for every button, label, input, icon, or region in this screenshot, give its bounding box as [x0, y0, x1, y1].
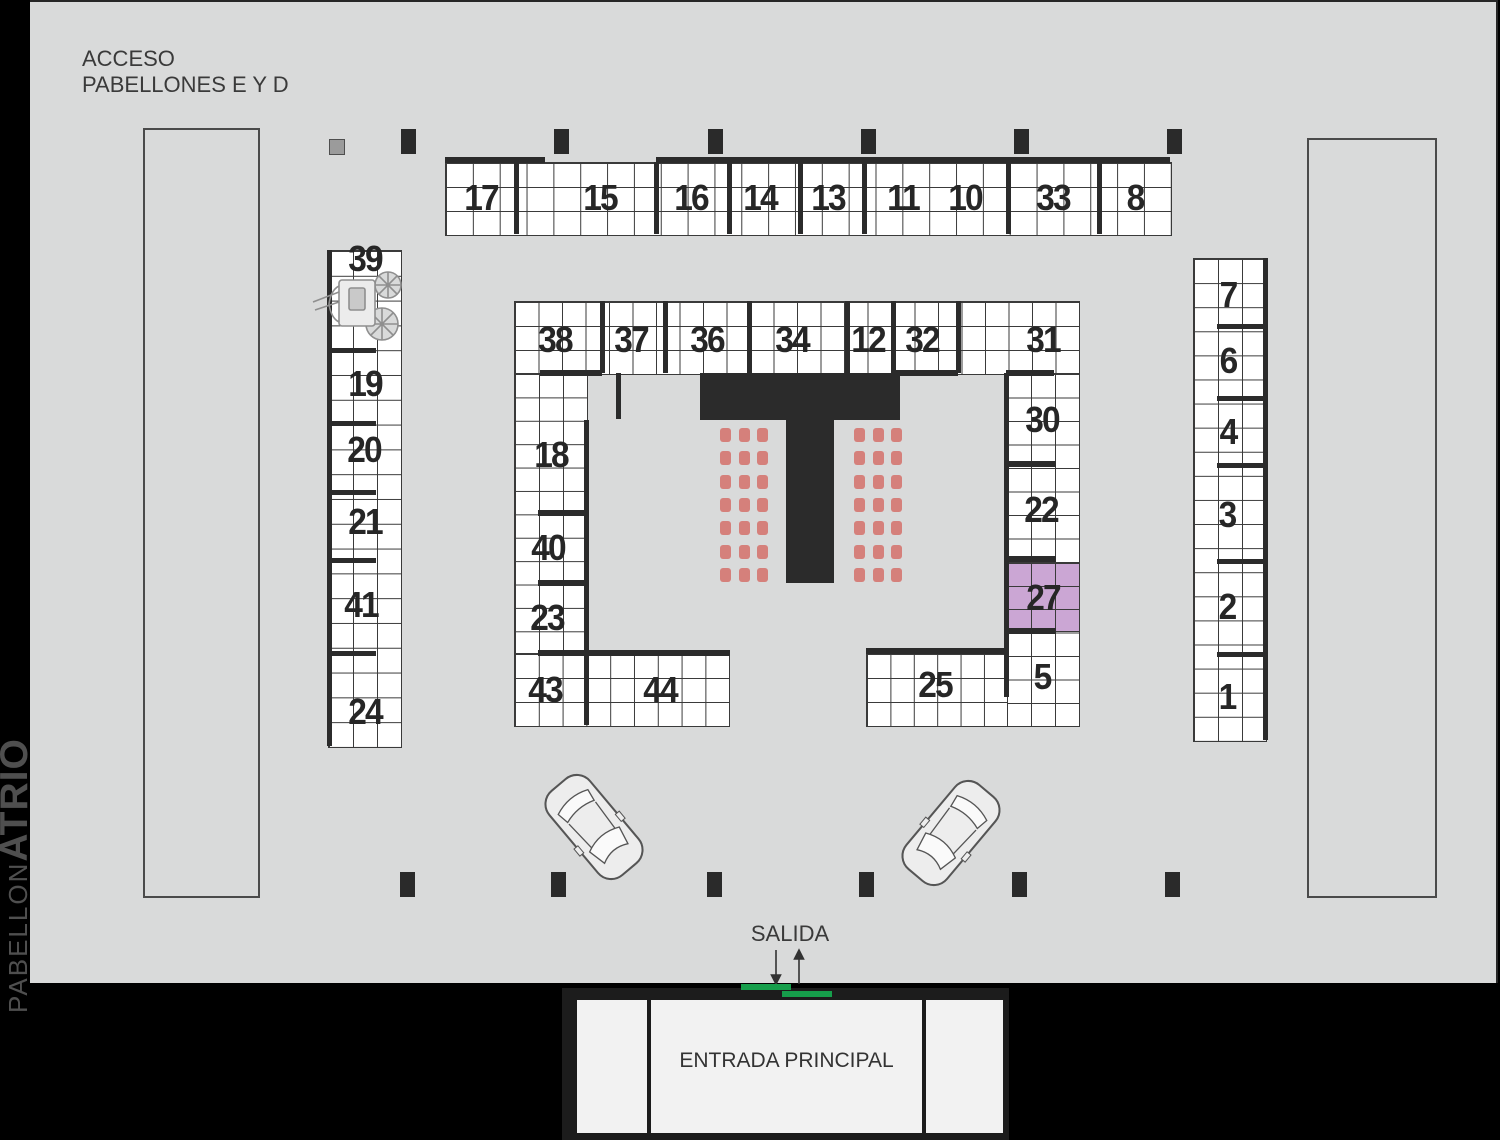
entrance-side-room: [926, 1000, 1003, 1133]
atrium-word: ATRIO: [0, 738, 36, 861]
pillar: [707, 872, 722, 897]
chair-icon: [720, 451, 731, 465]
wall-segment: [584, 420, 589, 653]
booth-label-18: 18: [534, 434, 568, 476]
wall-segment: [798, 162, 803, 234]
access-line1: ACCESO: [82, 46, 289, 72]
booth-label-24: 24: [348, 691, 382, 733]
exit-arrows-icon: [758, 948, 818, 986]
booth-label-34: 34: [775, 319, 809, 361]
chair-icon: [854, 428, 865, 442]
booth-label-7: 7: [1220, 274, 1237, 316]
booth-label-6: 6: [1220, 340, 1237, 382]
chair-icon: [873, 451, 884, 465]
wall-segment: [1006, 628, 1056, 634]
pillar: [554, 129, 569, 154]
chair-icon: [891, 568, 902, 582]
wall-segment: [663, 301, 668, 373]
entrance-label: ENTRADA PRINCIPAL: [651, 988, 922, 1133]
wall-segment: [328, 490, 376, 495]
wall-segment: [1217, 463, 1265, 468]
chair-icon: [757, 428, 768, 442]
chair-icon: [720, 545, 731, 559]
booth-label-13: 13: [811, 177, 845, 219]
chair-icon: [891, 498, 902, 512]
booth-label-43: 43: [528, 669, 562, 711]
chair-icon: [891, 428, 902, 442]
chair-icon: [873, 521, 884, 535]
chair-icon: [757, 475, 768, 489]
wall-segment: [328, 421, 376, 426]
booth-label-30: 30: [1025, 399, 1059, 441]
booth-label-19: 19: [348, 363, 382, 405]
pillar: [401, 129, 416, 154]
booth-label-44: 44: [643, 669, 677, 711]
wall-segment: [328, 651, 376, 656]
entrance-side-room: [577, 1000, 647, 1133]
wall-segment: [328, 558, 376, 563]
chair-icon: [854, 568, 865, 582]
booth-label-8: 8: [1127, 177, 1144, 219]
chair-icon: [891, 545, 902, 559]
chair-icon: [757, 498, 768, 512]
wall-segment: [747, 301, 752, 373]
chair-icon: [891, 475, 902, 489]
booth-label-20: 20: [347, 429, 381, 471]
chair-icon: [854, 521, 865, 535]
wall-segment: [584, 653, 589, 725]
pavilion-word: PABELLON: [3, 862, 33, 1013]
pillar: [1014, 129, 1029, 154]
chair-icon: [720, 428, 731, 442]
wall-segment: [1006, 370, 1054, 376]
wall-segment: [616, 373, 621, 419]
wall-segment: [1263, 258, 1268, 740]
wall-segment: [538, 510, 586, 516]
booth-label-39: 39: [348, 238, 382, 280]
wall-segment: [1006, 162, 1011, 234]
chair-icon: [854, 475, 865, 489]
chair-icon: [739, 521, 750, 535]
wall-segment: [866, 648, 1008, 654]
booth-label-11: 11: [887, 177, 919, 219]
chair-icon: [720, 521, 731, 535]
chair-icon: [873, 568, 884, 582]
utility-box: [329, 139, 345, 155]
booth-label-4: 4: [1220, 411, 1237, 453]
chair-icon: [891, 451, 902, 465]
pillar: [1167, 129, 1182, 154]
chair-icon: [873, 498, 884, 512]
wall-segment: [891, 301, 896, 373]
wall-segment: [700, 373, 900, 420]
right-empty-zone: [1307, 138, 1437, 898]
chair-icon: [739, 568, 750, 582]
wall-segment: [956, 301, 961, 373]
wall-segment: [328, 348, 376, 353]
booth-label-25: 25: [918, 664, 952, 706]
booth-label-16: 16: [674, 177, 708, 219]
wall-segment: [1217, 396, 1265, 401]
booth-label-36: 36: [690, 319, 724, 361]
booth-label-10: 10: [948, 177, 982, 219]
chair-icon: [757, 568, 768, 582]
pillar: [859, 872, 874, 897]
chair-icon: [891, 521, 902, 535]
booth-label-40: 40: [531, 527, 565, 569]
pavilion-name: PABELLONATRIO: [0, 738, 44, 1013]
pillar: [1165, 872, 1180, 897]
wall-segment: [786, 420, 834, 583]
chair-icon: [873, 428, 884, 442]
access-line2: PABELLONES E Y D: [82, 72, 289, 98]
access-label: ACCESO PABELLONES E Y D: [82, 46, 289, 99]
booth-label-3: 3: [1219, 494, 1236, 536]
pillar: [861, 129, 876, 154]
booth-label-32: 32: [905, 319, 939, 361]
wall-segment: [600, 301, 605, 373]
booth-label-1: 1: [1219, 676, 1236, 718]
chair-icon: [739, 498, 750, 512]
left-empty-zone: [143, 128, 260, 898]
wall-segment: [540, 370, 602, 376]
booth-label-5: 5: [1034, 656, 1051, 698]
chair-icon: [720, 475, 731, 489]
booth-label-12: 12: [851, 319, 885, 361]
wall-segment: [514, 162, 519, 234]
booth-label-37: 37: [614, 319, 648, 361]
chair-icon: [739, 451, 750, 465]
wall-segment: [845, 301, 850, 373]
booth-label-2: 2: [1219, 586, 1236, 628]
chair-icon: [854, 451, 865, 465]
wall-segment: [656, 157, 1170, 163]
booth-label-27: 27: [1026, 577, 1060, 619]
chair-icon: [739, 475, 750, 489]
exit-label: SALIDA: [751, 921, 829, 947]
wall-segment: [538, 580, 586, 586]
chair-icon: [739, 428, 750, 442]
booth-label-14: 14: [743, 177, 777, 219]
wall-segment: [445, 157, 545, 163]
booth-label-15: 15: [583, 177, 617, 219]
wall-segment: [891, 370, 958, 376]
wall-segment: [1217, 559, 1265, 564]
pillar: [551, 872, 566, 897]
wall-segment: [1097, 162, 1102, 234]
wall-segment: [727, 162, 732, 234]
wall-segment: [538, 650, 730, 656]
chair-icon: [854, 545, 865, 559]
booth-label-17: 17: [464, 177, 498, 219]
booth-label-22: 22: [1024, 489, 1058, 531]
pillar: [400, 872, 415, 897]
booth-label-31: 31: [1026, 319, 1060, 361]
chair-icon: [720, 568, 731, 582]
booth-label-38: 38: [538, 319, 572, 361]
floor-plan: ACCESO PABELLONES E Y D 1715161413111033…: [0, 0, 1500, 1140]
pillar: [708, 129, 723, 154]
booth-label-41: 41: [344, 584, 378, 626]
wall-segment: [654, 162, 659, 234]
wall-segment: [1217, 652, 1265, 657]
chair-icon: [757, 545, 768, 559]
wall-segment: [862, 162, 867, 234]
wall-segment: [1217, 324, 1265, 329]
chair-icon: [757, 521, 768, 535]
chair-icon: [757, 451, 768, 465]
chair-icon: [854, 498, 865, 512]
wall-segment: [1006, 556, 1056, 562]
chair-icon: [720, 498, 731, 512]
chair-icon: [739, 545, 750, 559]
pillar: [1012, 872, 1027, 897]
booth-label-21: 21: [348, 501, 382, 543]
wall-segment: [1006, 461, 1056, 467]
booth-label-23: 23: [530, 597, 564, 639]
booth-label-33: 33: [1036, 177, 1070, 219]
chair-icon: [873, 545, 884, 559]
chair-icon: [873, 475, 884, 489]
